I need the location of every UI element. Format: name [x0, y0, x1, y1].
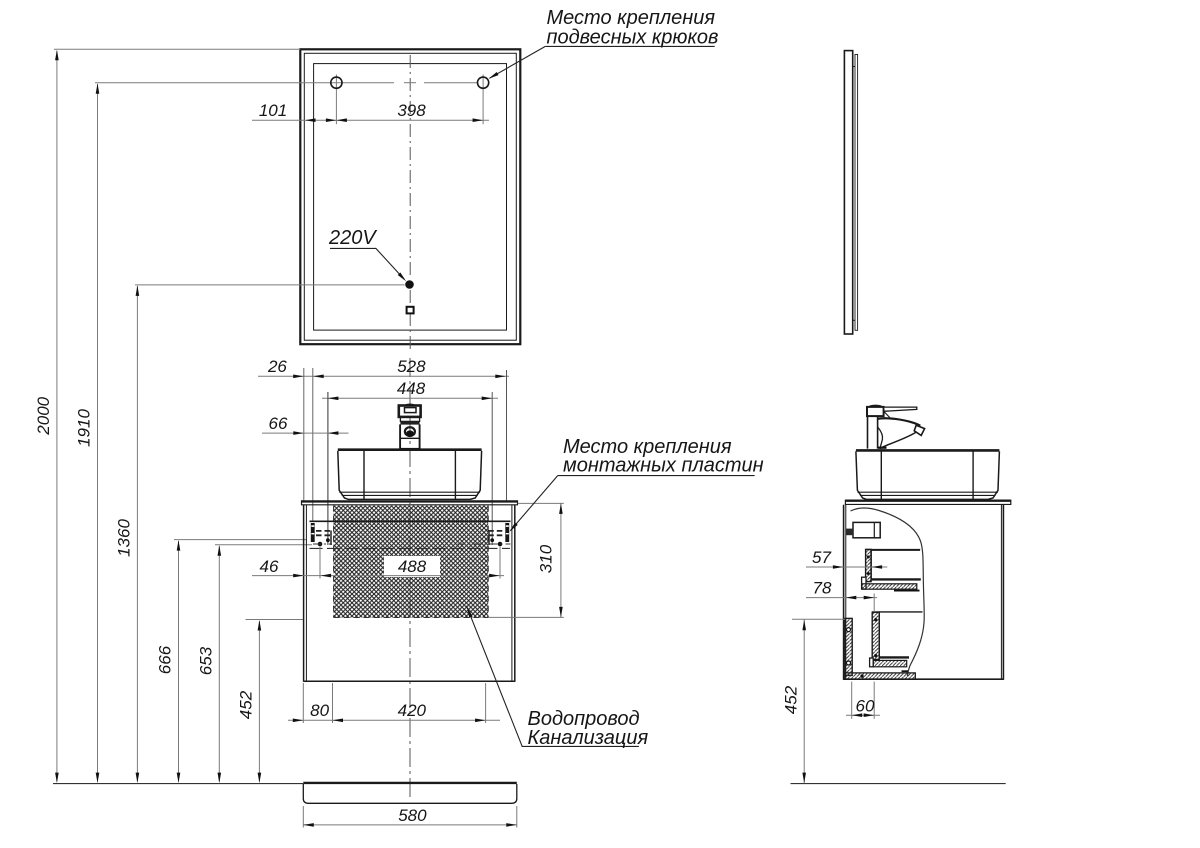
svg-text:666: 666	[156, 645, 175, 674]
svg-text:26: 26	[267, 357, 287, 376]
svg-text:653: 653	[197, 646, 216, 675]
svg-text:Место крепления: Место крепления	[547, 7, 716, 29]
svg-text:398: 398	[397, 101, 426, 120]
svg-text:220V: 220V	[328, 227, 377, 249]
svg-text:подвесных крюков: подвесных крюков	[547, 27, 719, 49]
svg-text:101: 101	[259, 101, 287, 120]
svg-text:78: 78	[813, 579, 832, 598]
svg-text:монтажных пластин: монтажных пластин	[563, 455, 764, 477]
svg-text:1360: 1360	[115, 519, 134, 557]
svg-text:448: 448	[397, 379, 426, 398]
svg-text:528: 528	[397, 357, 426, 376]
svg-text:46: 46	[260, 557, 279, 576]
svg-text:Канализация: Канализация	[528, 727, 649, 749]
svg-text:66: 66	[269, 414, 288, 433]
svg-text:420: 420	[398, 701, 427, 720]
svg-text:1910: 1910	[75, 409, 94, 447]
svg-text:60: 60	[856, 697, 875, 716]
svg-text:57: 57	[812, 548, 831, 567]
svg-text:452: 452	[237, 690, 256, 719]
svg-text:488: 488	[398, 557, 427, 576]
svg-text:452: 452	[782, 685, 801, 714]
svg-text:80: 80	[310, 701, 329, 720]
svg-text:580: 580	[398, 806, 427, 825]
svg-text:310: 310	[537, 544, 556, 573]
svg-text:2000: 2000	[34, 396, 53, 435]
